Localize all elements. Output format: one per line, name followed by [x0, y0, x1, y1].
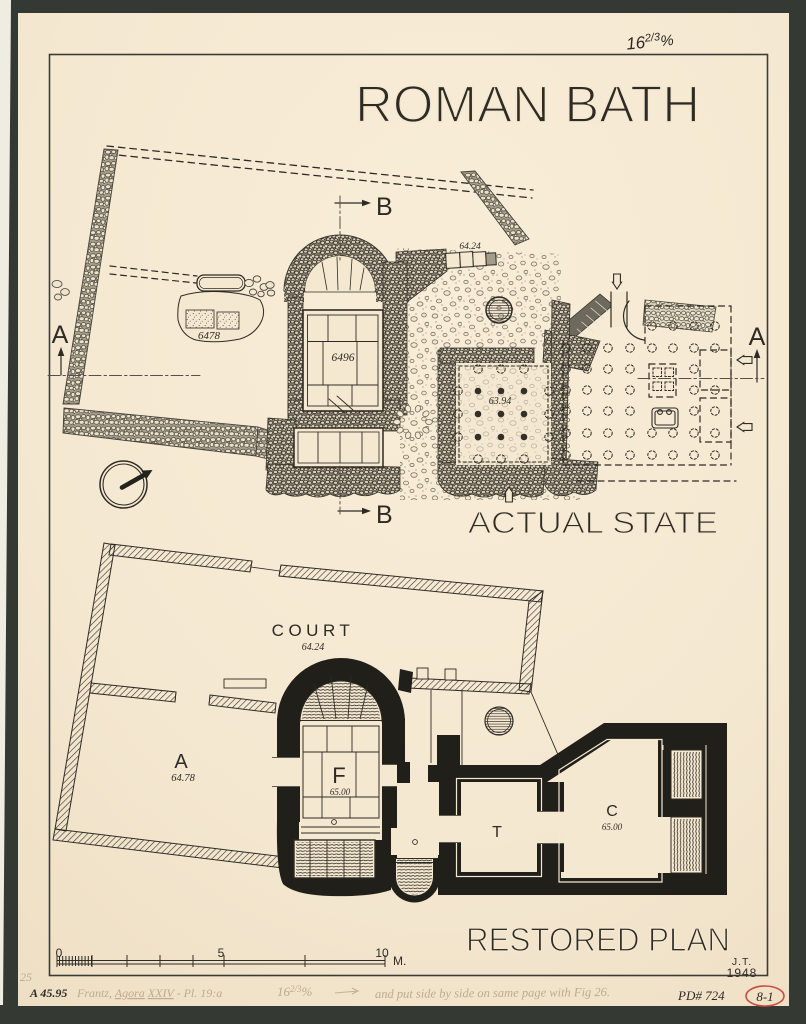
svg-text:25: 25 — [20, 970, 32, 984]
svg-text:6496: 6496 — [332, 352, 355, 364]
svg-text:A 45.95: A 45.95 — [29, 986, 67, 1000]
svg-text:6478: 6478 — [198, 330, 221, 342]
svg-text:65.00: 65.00 — [330, 787, 351, 797]
svg-text:5: 5 — [218, 946, 225, 960]
svg-text:10: 10 — [375, 946, 389, 960]
svg-text:8-1: 8-1 — [756, 989, 773, 1004]
svg-text:1948: 1948 — [727, 966, 758, 980]
svg-text:ROMAN BATH: ROMAN BATH — [355, 76, 700, 134]
svg-text:B: B — [376, 501, 393, 529]
svg-text:64.24: 64.24 — [302, 642, 325, 653]
svg-text:COURT: COURT — [272, 621, 355, 640]
svg-text:A: A — [52, 321, 69, 349]
svg-text:T: T — [492, 824, 502, 841]
svg-text:M.: M. — [393, 954, 406, 968]
svg-text:F: F — [332, 763, 345, 788]
svg-text:A: A — [749, 323, 766, 351]
svg-text:63.94: 63.94 — [489, 396, 512, 407]
svg-text:64.24: 64.24 — [459, 242, 481, 252]
svg-text:65.00: 65.00 — [602, 822, 623, 832]
svg-text:RESTORED PLAN: RESTORED PLAN — [466, 921, 730, 958]
svg-text:64.78: 64.78 — [171, 773, 195, 784]
svg-text:and put side by side on same p: and put side by side on same page with F… — [375, 985, 610, 1001]
svg-text:C: C — [606, 803, 618, 820]
svg-text:Frantz, Agora XXIV - Pl. 19:a: Frantz, Agora XXIV - Pl. 19:a — [76, 986, 222, 1000]
svg-text:PD# 724: PD# 724 — [677, 988, 725, 1003]
svg-text:ACTUAL STATE: ACTUAL STATE — [468, 505, 718, 540]
svg-text:A: A — [174, 751, 188, 773]
svg-text:B: B — [376, 193, 393, 221]
svg-text:0: 0 — [56, 946, 63, 960]
